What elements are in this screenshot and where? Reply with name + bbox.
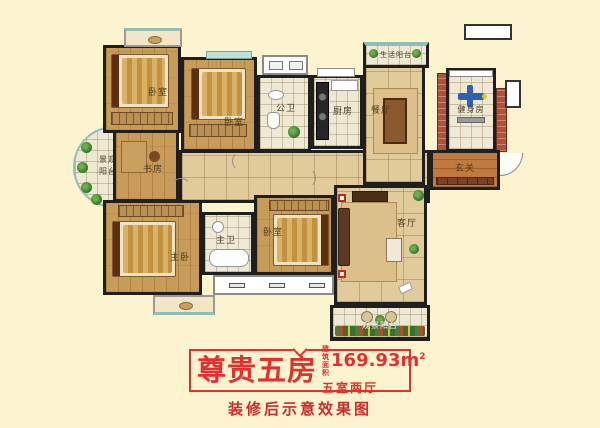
window-tick (309, 283, 325, 288)
area-label: 建筑面积 (322, 345, 329, 377)
door-arc (232, 151, 252, 171)
room-bedroom-3: 卧室 (254, 195, 334, 275)
plant-icon (77, 162, 88, 173)
bay-window (153, 295, 215, 315)
room-dining: 餐厅 (363, 65, 425, 185)
room-kitchen: 厨房 (311, 75, 363, 149)
plant-icon (413, 190, 424, 201)
entry-door (500, 153, 523, 176)
chair (149, 151, 160, 162)
room-label-service-balcony: 生活阳台 (366, 51, 426, 59)
kitchen-counter (331, 80, 358, 91)
wardrobe (269, 200, 329, 211)
room-label-master-bedroom: 主卧 (170, 253, 190, 264)
area-superscript: 2 (419, 352, 425, 362)
ac-unit (269, 61, 283, 70)
room-label-foyer: 玄关 (433, 164, 497, 175)
dining-table (383, 98, 407, 144)
window (317, 68, 355, 77)
ac-unit (289, 61, 303, 70)
room-view-balcony: 观景阳台 (330, 305, 430, 341)
plant-icon (288, 126, 300, 138)
wardrobe (111, 112, 173, 125)
area-number: 169.93m (331, 350, 419, 371)
magazine (398, 282, 413, 295)
window (449, 70, 493, 77)
banner-right: 建筑面积 169.93m2 五室两厅 (322, 345, 425, 396)
window-tick (229, 283, 245, 288)
window (206, 51, 252, 59)
room-label-dining: 餐厅 (371, 106, 391, 117)
area-label-line2: 面积 (322, 361, 329, 377)
decor (179, 302, 193, 310)
bed (112, 221, 176, 277)
door-arc (296, 168, 316, 188)
area-row: 建筑面积 169.93m2 (322, 345, 425, 377)
exercise-equipment (467, 85, 473, 107)
room-label-gym: 健身房 (449, 105, 493, 115)
room-label-public-bath: 公卫 (276, 104, 296, 115)
room-foyer: 玄关 (430, 150, 500, 190)
window-tick (269, 283, 285, 288)
gym-bench (457, 117, 485, 123)
decor (148, 36, 162, 44)
end-table (338, 194, 346, 202)
layout-text: 五室两厅 (322, 379, 425, 396)
bed (273, 214, 329, 266)
plant-icon (91, 194, 102, 205)
room-service-balcony: 生活阳台 (363, 42, 429, 68)
bathtub (209, 249, 249, 267)
bay-window (124, 28, 182, 47)
window-band (213, 275, 334, 295)
door-arc (171, 178, 191, 198)
wardrobe (118, 205, 184, 217)
shoe-cabinet (436, 177, 494, 185)
room-label-bedroom-1: 卧室 (148, 88, 168, 99)
area-label-line1: 建筑 (322, 345, 329, 361)
room-bedroom-1: 卧室 (103, 45, 181, 133)
room-label-living: 客厅 (397, 219, 417, 230)
room-master-bedroom: 主卧 (103, 200, 202, 295)
room-label-master-bath: 主卫 (216, 236, 236, 247)
tv-stand (352, 191, 388, 202)
room-label-kitchen: 厨房 (333, 107, 353, 118)
plant-icon (81, 182, 92, 193)
floor-plan-page: 景观阳台 卧室 卧室 公卫 厨房 餐厅 生活阳台 (0, 0, 600, 428)
room-label-study: 书房 (143, 165, 163, 176)
area-value: 169.93m2 (331, 352, 425, 370)
banner-title: 尊贵五房 (197, 356, 317, 385)
ac-platform (464, 24, 512, 40)
sink (268, 90, 284, 100)
caption: 装修后示意效果图 (0, 398, 600, 419)
room-label-bedroom-2: 卧室 (224, 118, 244, 129)
room-master-bath: 主卫 (202, 212, 254, 275)
room-gym: 健身房 (446, 68, 496, 152)
room-bedroom-2: 卧室 (181, 57, 257, 152)
coffee-table (386, 238, 402, 262)
room-label-view-balcony: 观景阳台 (333, 321, 427, 331)
ac-platform (505, 80, 521, 108)
sink (212, 221, 224, 233)
room-living: 客厅 (334, 185, 427, 305)
plant-icon (409, 244, 419, 254)
sofa (338, 208, 350, 266)
room-label-bedroom-3: 卧室 (263, 228, 283, 239)
equipment-detail (482, 94, 487, 99)
stove (316, 82, 329, 140)
plant-icon (81, 142, 92, 153)
banner: 尊贵五房 建筑面积 169.93m2 五室两厅 (189, 349, 411, 392)
end-table (338, 270, 346, 278)
ac-platform (262, 55, 308, 75)
room-public-bath: 公卫 (257, 75, 311, 152)
bed (191, 68, 246, 120)
room-study: 书房 (113, 130, 179, 202)
bed (111, 54, 169, 108)
